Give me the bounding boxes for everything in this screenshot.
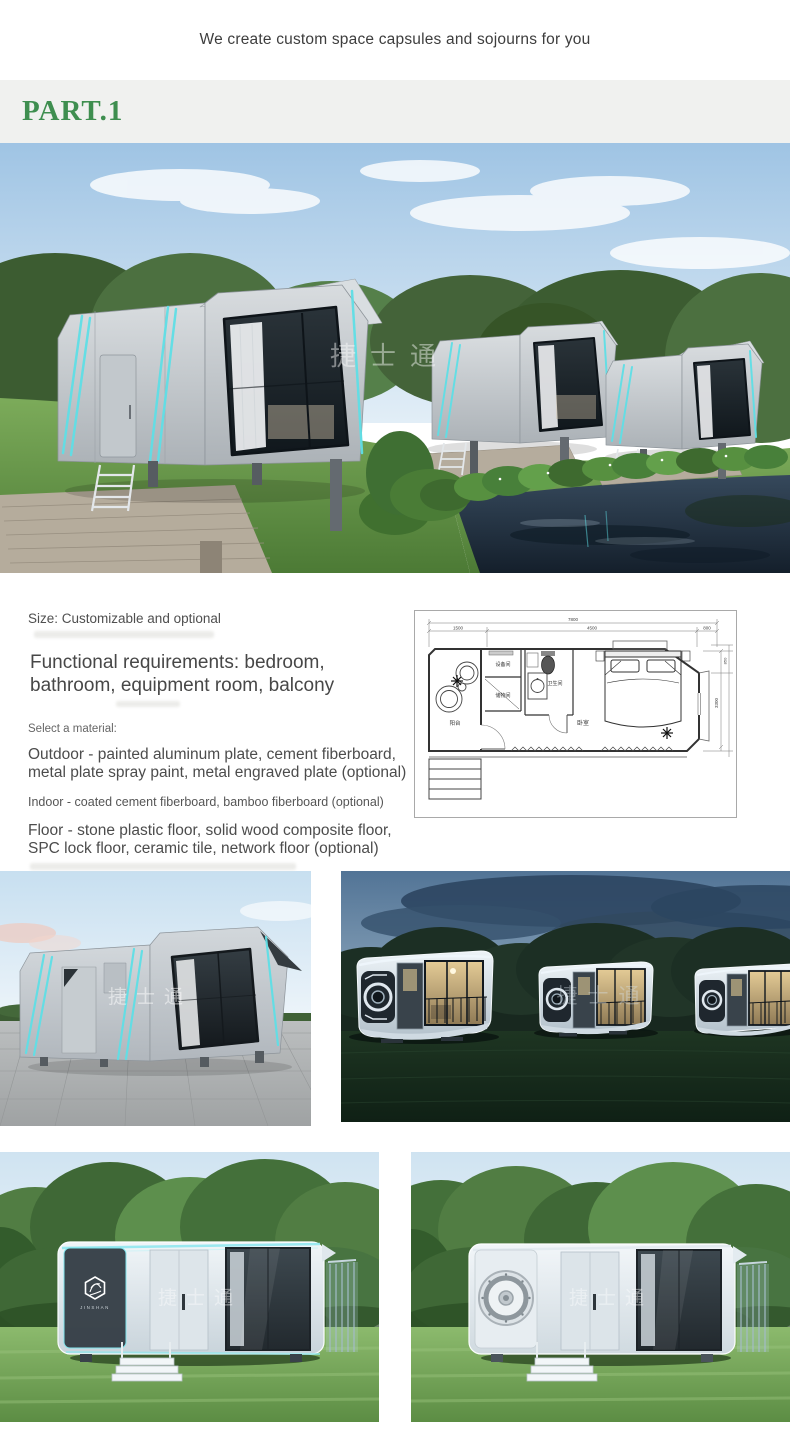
- utility-rooms: [485, 649, 521, 711]
- porthole-window: [479, 1271, 533, 1325]
- dimension-lines-top: [427, 619, 719, 647]
- room-label-bedroom: 卧室: [577, 719, 589, 727]
- dim-side-small: 850: [723, 657, 728, 664]
- page-header: We create custom space capsules and sojo…: [0, 0, 790, 80]
- plant-symbol: [661, 727, 673, 739]
- capsule-1: [58, 279, 382, 531]
- erased-text-artifact: [30, 863, 296, 870]
- hero-photo-canvas: 捷士通: [0, 143, 790, 573]
- specs-text-column: Size: Customizable and optional Function…: [28, 611, 420, 870]
- room-label-balcony: 阳台: [449, 719, 461, 727]
- floor-plan-drawing: 7800 1500 4500 800 3300 850: [415, 611, 736, 817]
- select-material-label: Select a material:: [28, 723, 420, 735]
- dim-seg-left: 1500: [453, 626, 464, 631]
- gallery-bottom: JINSHAN: [0, 1152, 790, 1422]
- gallery-middle: 捷士通: [0, 871, 790, 1126]
- night-capsule-3: [694, 964, 790, 1037]
- photo-capsule-logo-panel: JINSHAN: [0, 1152, 379, 1422]
- photo-capsules-night: 捷士通: [341, 871, 790, 1122]
- night-capsule-1: [349, 951, 499, 1044]
- page-title: We create custom space capsules and sojo…: [200, 31, 591, 49]
- size-line: Size: Customizable and optional: [28, 611, 420, 626]
- outer-walls: [429, 649, 699, 751]
- photo-capsule-plaza: 捷士通: [0, 871, 311, 1126]
- entry-steps: [429, 759, 481, 799]
- hero-photo-capsule-resort: 捷士通: [0, 143, 790, 573]
- specs-section: Size: Customizable and optional Function…: [0, 573, 790, 860]
- watermark-text: 捷士通: [557, 984, 650, 1008]
- watermark-text: 捷士通: [108, 986, 192, 1008]
- bathroom-fixtures: [525, 649, 573, 733]
- erased-text-artifact: [34, 631, 214, 638]
- erased-text-artifact: [116, 701, 180, 707]
- dim-side: 3300: [714, 697, 719, 708]
- dim-seg-right: 800: [703, 626, 711, 631]
- dim-total: 7800: [568, 617, 579, 622]
- section-band: PART.1: [0, 80, 790, 143]
- watermark-text: 捷士通: [569, 1287, 653, 1309]
- room-label-bathroom: 卫生间: [547, 680, 562, 687]
- floor-material-line: Floor - stone plastic floor, solid wood …: [28, 822, 420, 858]
- bed: [596, 651, 690, 727]
- floor-plan: 7800 1500 4500 800 3300 850: [414, 610, 737, 818]
- photo-capsule-porthole: 捷士通: [411, 1152, 790, 1422]
- functional-line: Functional requirements: bedroom, bathro…: [30, 652, 420, 697]
- section-label: PART.1: [22, 95, 123, 128]
- watermark-text: 捷士通: [158, 1287, 242, 1309]
- room-label-equipment: 设备间: [495, 661, 510, 668]
- room-label-storage: 储物间: [495, 692, 510, 699]
- brand-logo-caption: JINSHAN: [80, 1305, 110, 1310]
- indoor-material-line: Indoor - coated cement fiberboard, bambo…: [28, 795, 420, 809]
- outdoor-material-line: Outdoor - painted aluminum plate, cement…: [28, 746, 420, 782]
- dim-seg-mid: 4500: [587, 626, 598, 631]
- watermark-text: 捷士通: [330, 342, 450, 372]
